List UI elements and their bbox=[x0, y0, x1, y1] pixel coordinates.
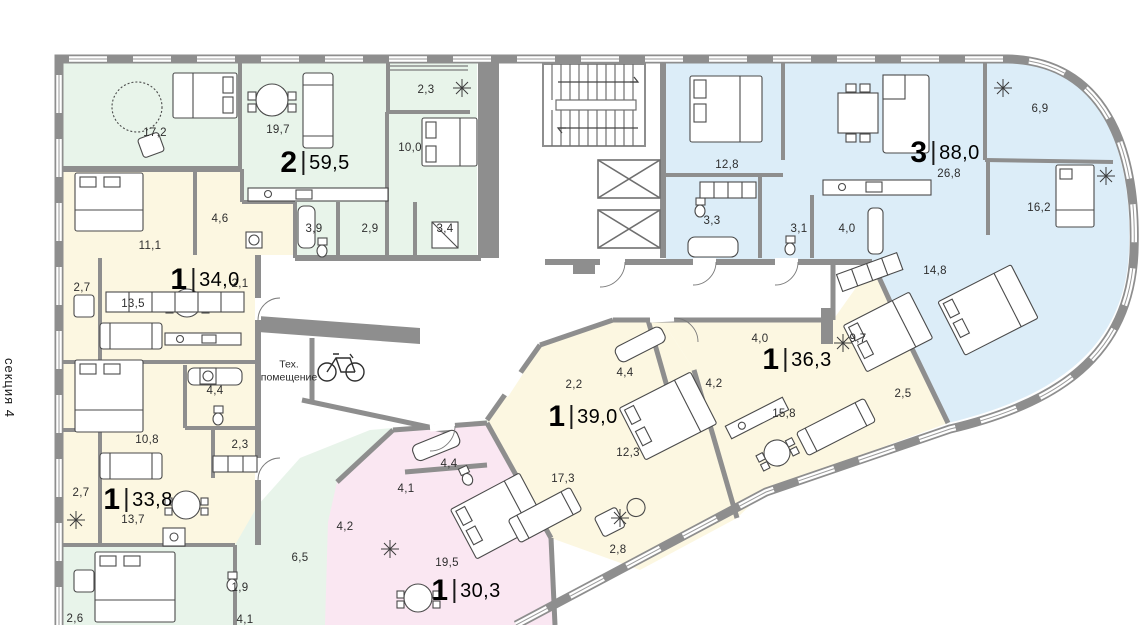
room-area-label: 4,2 bbox=[337, 521, 354, 533]
room-area-label: 2,7 bbox=[74, 282, 91, 294]
bed-icon bbox=[95, 552, 175, 622]
room-area-label: 17,2 bbox=[143, 127, 167, 139]
kitchen-counter-icon bbox=[163, 528, 185, 546]
kitchen-counter-icon bbox=[165, 333, 241, 345]
room-area-label: 2,7 bbox=[73, 487, 90, 499]
room-area-label: 14,8 bbox=[923, 265, 947, 277]
room-area-label: 10,0 bbox=[398, 142, 422, 154]
apartment-label: 139,0 bbox=[548, 402, 617, 432]
room-area-label: 2,3 bbox=[418, 84, 435, 96]
room-area-label: 13,7 bbox=[121, 514, 145, 526]
room-area-label: 4,4 bbox=[617, 367, 634, 379]
armchair-icon bbox=[74, 295, 94, 317]
room-area-label: 3,4 bbox=[437, 223, 454, 235]
room-area-label: 3,1 bbox=[791, 223, 808, 235]
room-area-label: 16,2 bbox=[1027, 202, 1051, 214]
bed-icon bbox=[422, 118, 477, 166]
room-area-label: 12,8 bbox=[715, 159, 739, 171]
room-area-label: 1,9 bbox=[232, 582, 249, 594]
kitchen-counter-icon bbox=[823, 180, 931, 195]
washer-icon bbox=[246, 232, 262, 248]
sofa-icon bbox=[100, 453, 162, 479]
room-area-label: 2,5 bbox=[895, 388, 912, 400]
sofa-icon bbox=[303, 73, 333, 148]
sofa-icon bbox=[100, 323, 162, 349]
apartment-label: 388,0 bbox=[910, 138, 979, 168]
room-area-label: 17,3 bbox=[551, 473, 575, 485]
bathtub-icon bbox=[868, 208, 883, 254]
room-area-label: 12,3 bbox=[616, 447, 640, 459]
washer-icon bbox=[200, 368, 216, 384]
floor-plan-drawing bbox=[0, 0, 1147, 625]
stairs bbox=[543, 64, 645, 146]
room-area-label: 4,2 bbox=[706, 378, 723, 390]
apartment-label: 259,5 bbox=[280, 148, 349, 178]
dining-table-icon bbox=[838, 84, 878, 142]
room-area-label: 2,9 bbox=[362, 223, 379, 235]
apartment-label: 133,8 bbox=[103, 485, 172, 515]
apartment-label: 134,0 bbox=[170, 265, 239, 295]
floor-plan: секция 4 Тех. помещение 259,5 134,0 133,… bbox=[0, 0, 1147, 625]
room-area-label: 4,0 bbox=[839, 223, 856, 235]
apartment-label: 130,3 bbox=[431, 576, 500, 606]
room-area-label: 15,8 bbox=[772, 408, 796, 420]
toilet-icon bbox=[785, 236, 795, 255]
room-area-label: 19,5 bbox=[435, 557, 459, 569]
wardrobe-icon bbox=[700, 182, 756, 198]
bed-icon bbox=[75, 360, 143, 432]
tech-room-label: Тех. помещение bbox=[261, 358, 317, 383]
armchair-icon bbox=[74, 570, 94, 592]
wardrobe-icon bbox=[213, 456, 257, 472]
room-area-label: 6,5 bbox=[292, 552, 309, 564]
bed-icon bbox=[1056, 165, 1094, 227]
room-area-label: 3,9 bbox=[306, 223, 323, 235]
room-area-label: 2,6 bbox=[67, 613, 84, 625]
bed-icon bbox=[173, 73, 237, 118]
apartment-label: 136,3 bbox=[762, 345, 831, 375]
bed-icon bbox=[690, 76, 762, 142]
room-area-label: 6,9 bbox=[1032, 103, 1049, 115]
room-area-label: 11,1 bbox=[139, 240, 162, 252]
room-area-label: 4,4 bbox=[207, 385, 224, 397]
room-area-label: 26,8 bbox=[937, 168, 961, 180]
room-area-label: 2,2 bbox=[566, 379, 583, 391]
room-area-label: 3,3 bbox=[704, 215, 721, 227]
room-area-label: 10,8 bbox=[135, 434, 159, 446]
room-area-label: 9,7 bbox=[850, 333, 867, 345]
section-label: секция 4 bbox=[2, 358, 17, 418]
room-area-label: 4,4 bbox=[441, 458, 458, 470]
kitchen-counter-icon bbox=[248, 188, 388, 201]
room-area-label: 2,1 bbox=[232, 278, 249, 290]
toilet-icon bbox=[317, 238, 327, 257]
room-area-label: 4,0 bbox=[752, 333, 769, 345]
room-area-label: 13,5 bbox=[121, 298, 145, 310]
room-area-label: 2,8 bbox=[610, 544, 627, 556]
room-area-label: 4,1 bbox=[398, 483, 415, 495]
bathtub-icon bbox=[688, 237, 738, 257]
room-area-label: 19,7 bbox=[266, 124, 290, 136]
toilet-icon bbox=[213, 406, 223, 425]
room-area-label: 4,6 bbox=[212, 213, 229, 225]
room-area-label: 2,3 bbox=[232, 439, 249, 451]
bed-icon bbox=[75, 173, 143, 231]
room-area-label: 4,1 bbox=[237, 614, 254, 625]
